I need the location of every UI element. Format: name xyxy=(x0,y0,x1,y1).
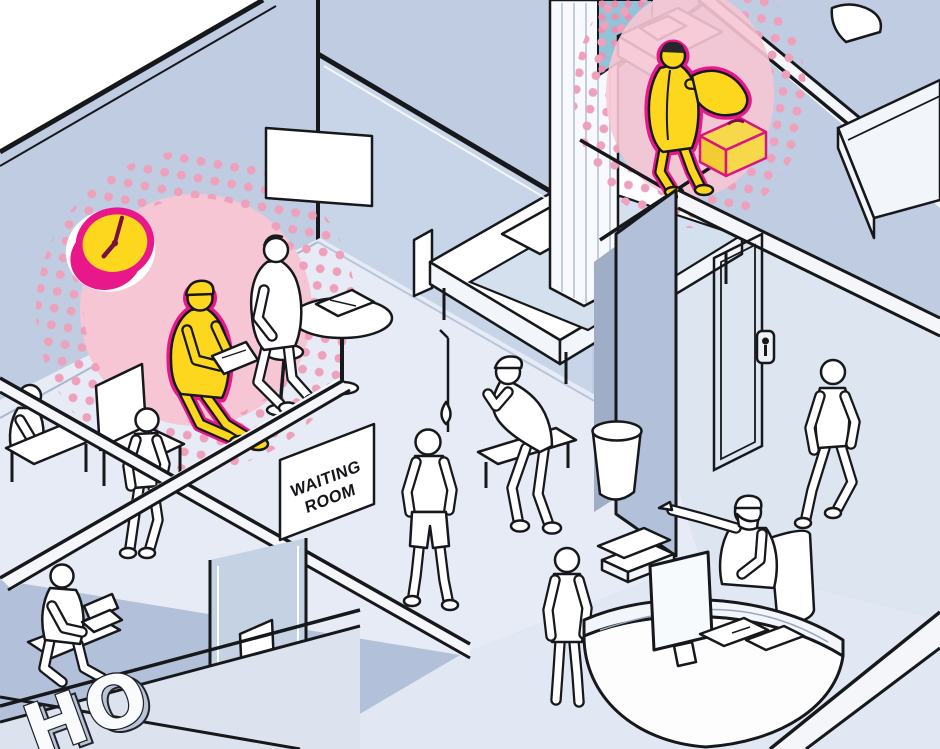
door-lock-plate xyxy=(757,331,774,363)
picture-frame xyxy=(266,128,372,206)
receptionist-hair xyxy=(735,496,761,508)
tall-wall xyxy=(616,190,676,556)
trash-can xyxy=(593,422,642,500)
hospital-cutaway-illustration: WAITING ROOM xyxy=(0,0,940,749)
